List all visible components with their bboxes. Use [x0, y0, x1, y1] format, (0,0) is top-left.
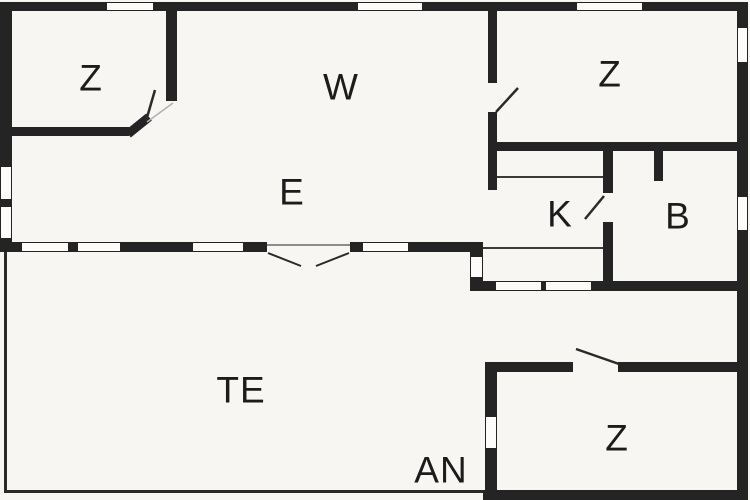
- room-label-z1: Z: [79, 60, 103, 97]
- floor-plan: Z W Z E K B TE AN Z: [0, 0, 750, 500]
- door-leaf-line-z3: [576, 349, 619, 364]
- door-leaf-line-terrace-left: [268, 253, 301, 266]
- door-leaf-line-z2: [496, 88, 518, 112]
- door-leaf-line-terrace-right: [316, 253, 349, 266]
- room-label-e: E: [279, 174, 305, 211]
- room-label-te: TE: [216, 372, 265, 409]
- room-label-k: K: [547, 196, 573, 233]
- door-leaf-line-b: [585, 196, 604, 219]
- room-label-z2: Z: [598, 56, 622, 93]
- door-swings-overlay: [0, 0, 750, 500]
- room-label-z3: Z: [605, 420, 629, 457]
- room-label-an: AN: [414, 452, 467, 489]
- room-label-w: W: [323, 69, 359, 106]
- room-label-b: B: [665, 198, 691, 235]
